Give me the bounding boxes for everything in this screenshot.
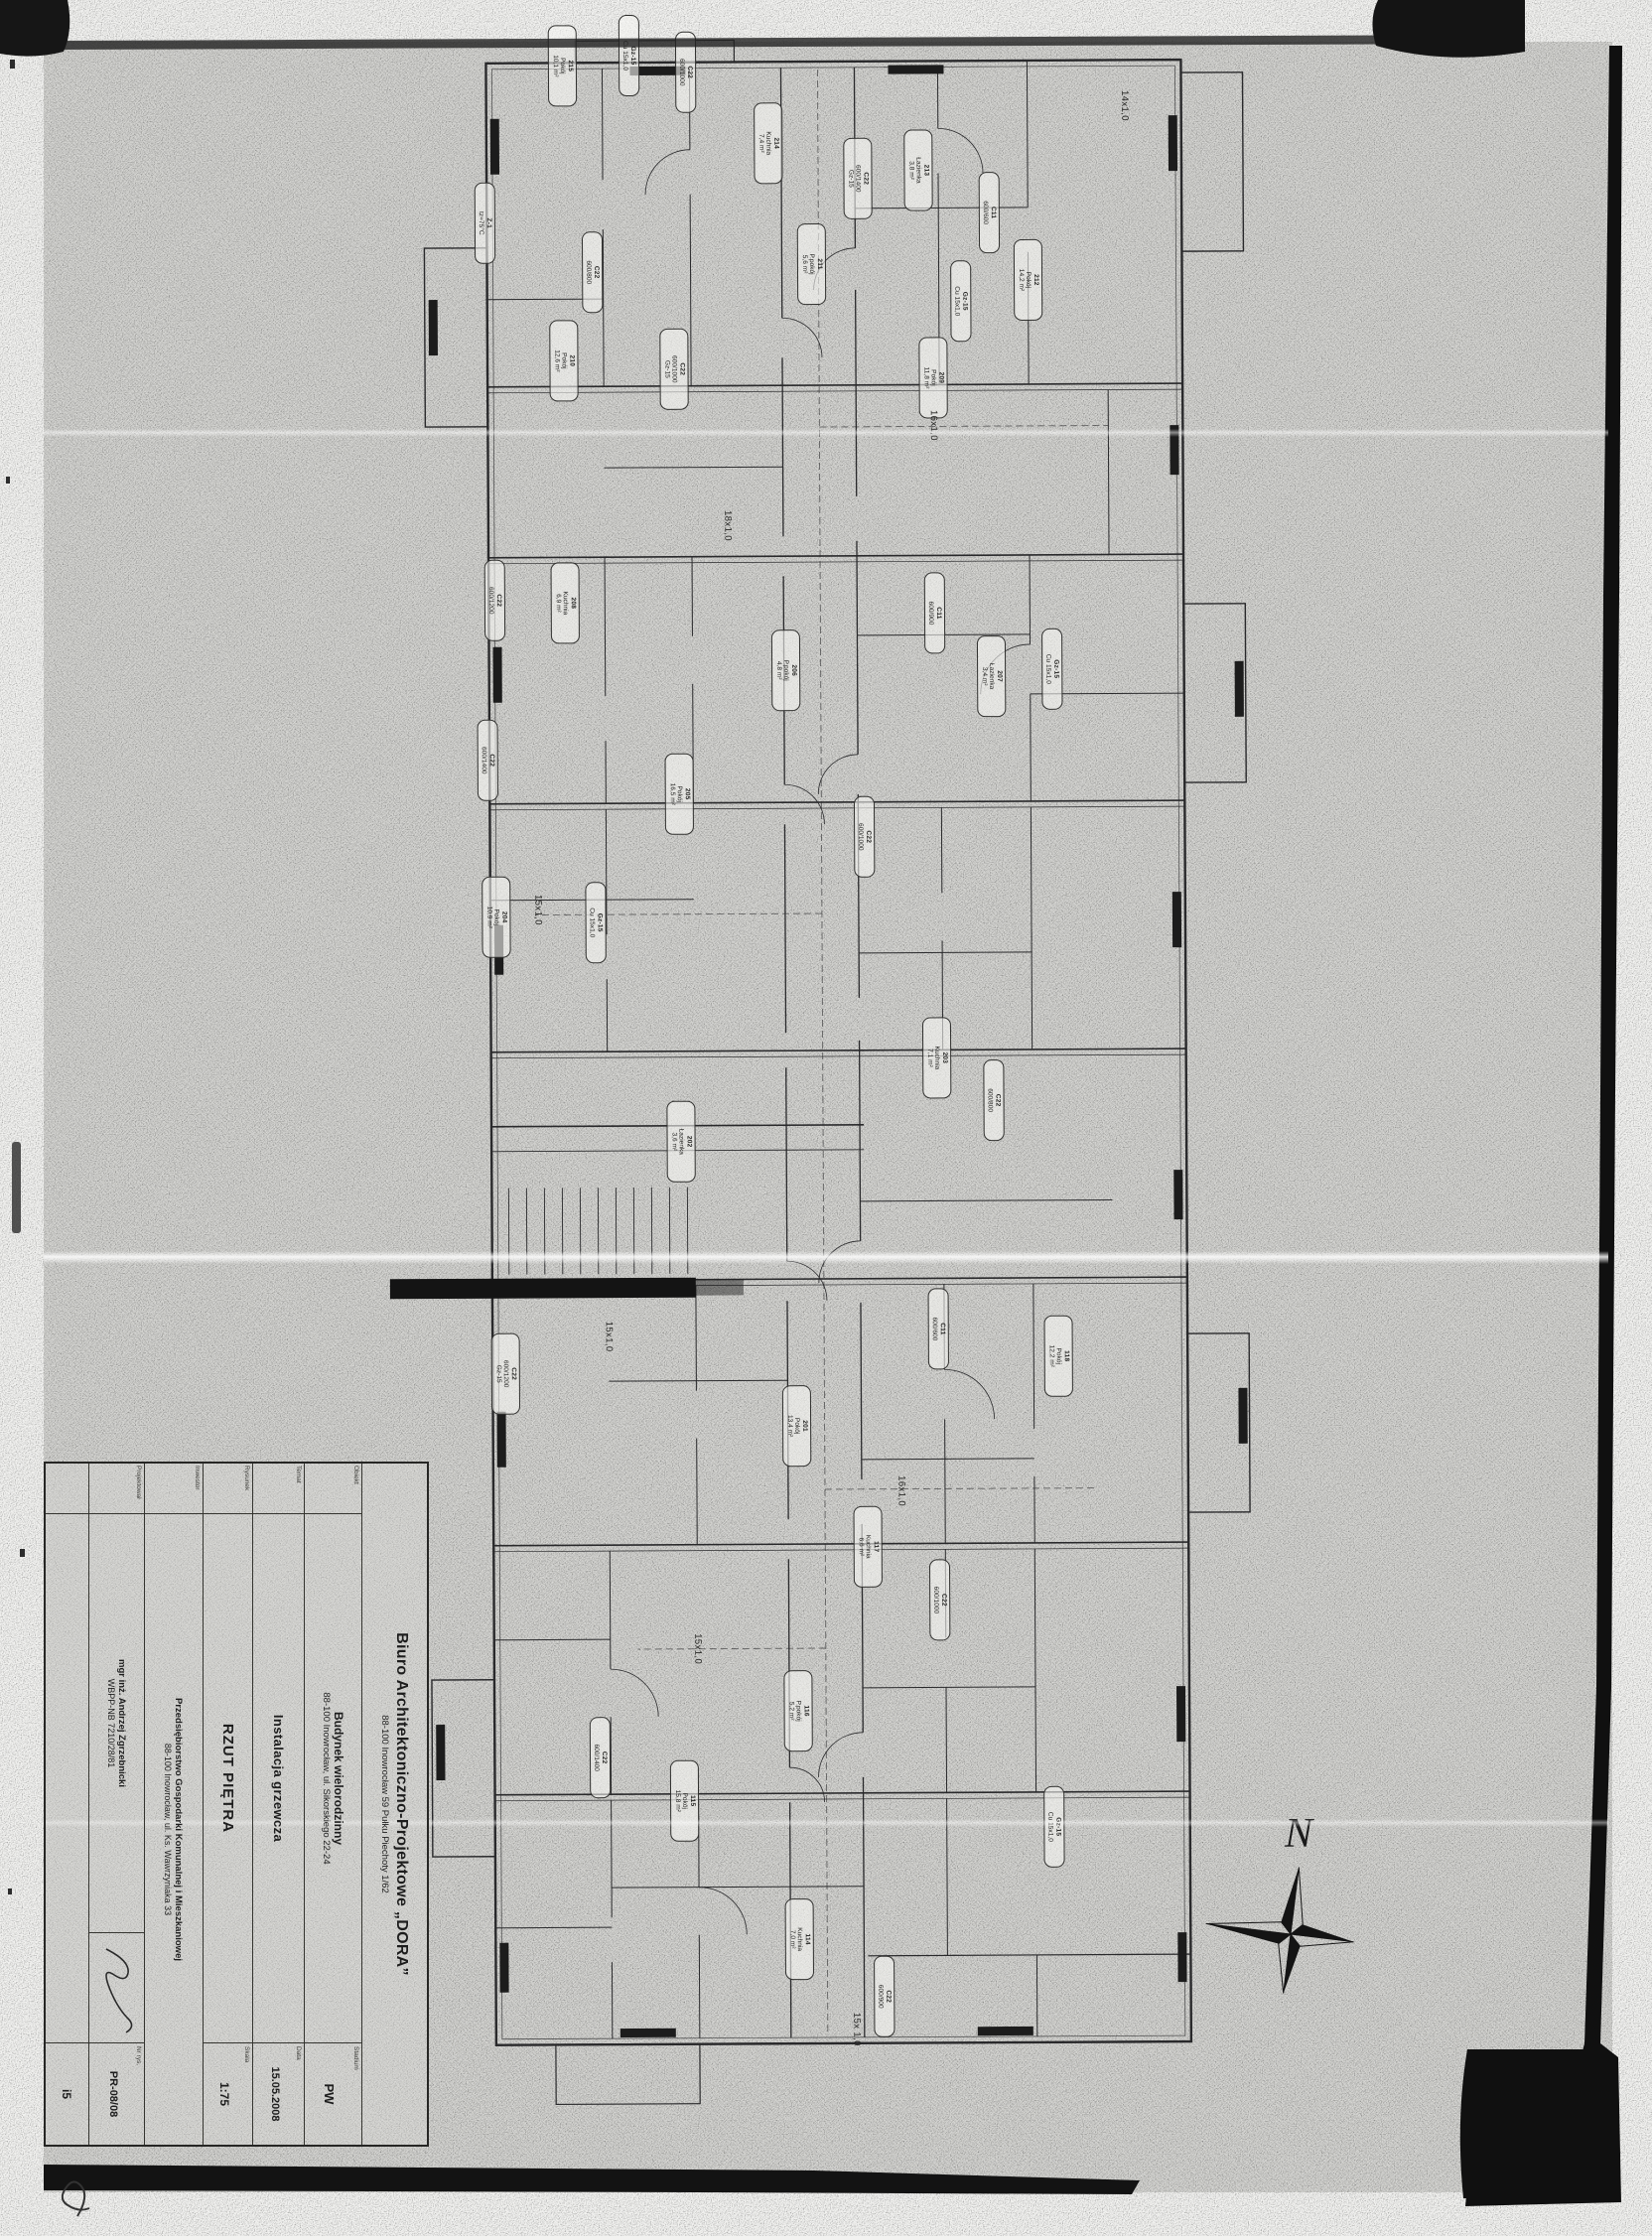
title-block-company-row: Biuro Architektoniczno-Projektowe „DORA”…	[361, 1464, 427, 2145]
designer-name: mgr inż. Andrzej Zgrzebnicki	[116, 1659, 127, 1787]
date-value: 15.05.2008	[269, 2066, 281, 2121]
object-label: Obiekt	[305, 1464, 361, 1514]
date-label: Data	[295, 2046, 302, 2142]
title-block-subject-row: Temat Instalacja grzewcza Data 15.05.200…	[252, 1464, 304, 2145]
signature-scribble	[91, 1933, 144, 2042]
company-name: Biuro Architektoniczno-Projektowe „DORA”	[392, 1632, 410, 1976]
compass-star	[1198, 1857, 1361, 2001]
scanned-drawing-page: { "title_block": { "company_name": "Biur…	[0, 0, 1652, 2236]
object-name: Budynek wielorodzinny	[332, 1712, 345, 1845]
title-block-designer-row: Projektował mgr inż. Andrzej Zgrzebnicki…	[88, 1464, 144, 2145]
sheet-number: i5	[61, 2089, 74, 2099]
bottom-edge-streak	[44, 2165, 1140, 2216]
north-letter: N	[1284, 1811, 1314, 1857]
drawing-number: PR-08/08	[107, 2071, 119, 2117]
stage-value: PW	[323, 2084, 338, 2105]
investor-address: 88-100 Inowrocław, ul. Ks. Wawrzyniaka 3…	[164, 1744, 174, 1915]
title-block-object-row: Obiekt Budynek wielorodzinny 88-100 Inow…	[304, 1464, 361, 2145]
designer-license: WBPP-NB 7210/28/81	[106, 1679, 116, 1768]
subject-label: Temat	[253, 1464, 304, 1514]
stage-label: Stadium	[352, 2046, 359, 2142]
scale-value: 1:75	[217, 2082, 231, 2106]
designer-label: Projektował	[89, 1464, 144, 1514]
title-block-bottom-row: i5	[46, 1464, 88, 2145]
investor-label: Inwestor	[145, 1464, 203, 1514]
top-edge-streak	[0, 0, 1525, 58]
investor-name: Przedsiębiorstwo Gospodarki Komunalnej i…	[174, 1698, 185, 1961]
drawing-label: Rysunek	[204, 1464, 252, 1514]
company-address: 88-100 Inowrocław 59 Pułku Piechoty 1/62	[379, 1715, 390, 1893]
scale-label: Skala	[243, 2046, 250, 2142]
title-block-investor-row: Inwestor Przedsiębiorstwo Gospodarki Kom…	[144, 1464, 203, 2145]
number-label: Nr rys.	[135, 2046, 142, 2142]
north-compass: N	[1187, 1777, 1406, 2035]
title-block: Biuro Architektoniczno-Projektowe „DORA”…	[44, 1462, 429, 2147]
subject-value: Instalacja grzewcza	[271, 1715, 286, 1842]
left-margin-specks	[6, 60, 25, 1894]
object-address: 88-100 Inowrocław, ul. Sikorskiego 22-24	[321, 1692, 332, 1864]
signature-cell	[89, 1932, 144, 2042]
drawing-title: RZUT PIĘTRA	[219, 1724, 236, 1833]
right-edge-band	[1460, 46, 1622, 2206]
title-block-drawing-row: Rysunek RZUT PIĘTRA Skala 1:75	[203, 1464, 252, 2145]
